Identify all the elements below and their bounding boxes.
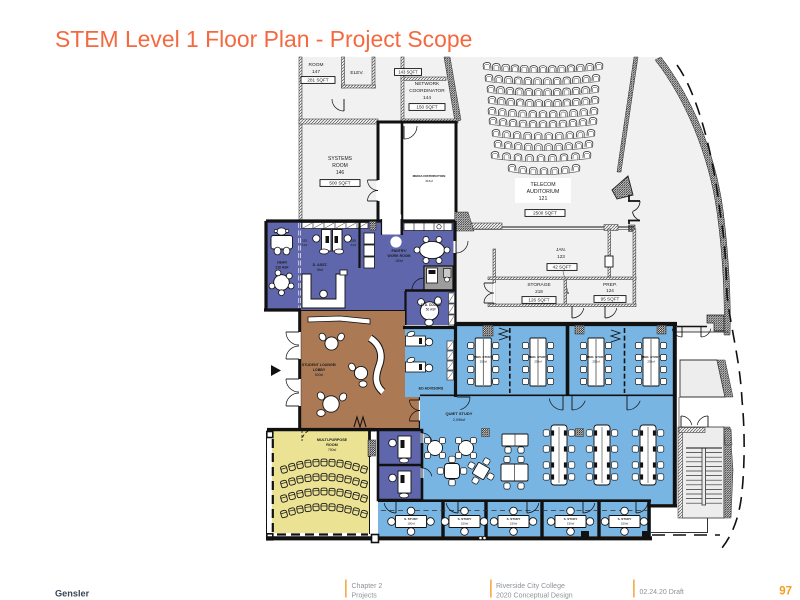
svg-text:TELECOM: TELECOM	[530, 182, 555, 188]
svg-text:210 ASF: 210 ASF	[275, 266, 288, 270]
svg-text:150sf: 150sf	[461, 522, 469, 526]
svg-text:2500 SQFT: 2500 SQFT	[533, 211, 557, 216]
svg-text:500 SQFT: 500 SQFT	[329, 181, 350, 186]
svg-text:QUIET STUDY: QUIET STUDY	[446, 411, 473, 416]
svg-text:2020 Conceptual Design: 2020 Conceptual Design	[496, 593, 573, 600]
svg-text:123: 123	[557, 254, 565, 259]
svg-text:S. STUDY: S. STUDY	[507, 517, 521, 521]
svg-text:316sf: 316sf	[425, 179, 433, 183]
svg-text:64sf: 64sf	[302, 243, 308, 247]
svg-text:COORDINATOR: COORDINATOR	[409, 88, 445, 94]
svg-text:97: 97	[779, 586, 792, 598]
svg-text:150sf: 150sf	[621, 522, 629, 526]
svg-text:MEDIA DISTRIBUTION: MEDIA DISTRIBUTION	[413, 174, 446, 178]
svg-text:STUDENT LOUNGE/: STUDENT LOUNGE/	[302, 363, 336, 367]
svg-text:MULTI-PURPOSE: MULTI-PURPOSE	[317, 438, 348, 442]
svg-text:NETWORK: NETWORK	[415, 81, 440, 87]
svg-text:S. STUDY: S. STUDY	[618, 517, 632, 521]
svg-text:Riverside City College: Riverside City College	[496, 583, 565, 590]
svg-text:218: 218	[535, 289, 543, 294]
svg-text:ELEV.: ELEV.	[350, 70, 363, 76]
svg-text:150sf: 150sf	[395, 259, 403, 263]
svg-text:MED. STUDY: MED. STUDY	[474, 355, 493, 359]
svg-text:143 SQFT: 143 SQFT	[398, 70, 418, 75]
svg-text:146: 146	[336, 170, 345, 176]
svg-text:255sf: 255sf	[647, 360, 655, 364]
svg-text:AUDITORIUM: AUDITORIUM	[527, 189, 560, 195]
svg-text:S. STUDY: S. STUDY	[458, 517, 472, 521]
svg-text:WORK ROOM: WORK ROOM	[388, 254, 411, 258]
svg-text:255sf: 255sf	[592, 360, 600, 364]
svg-text:Chapter 2: Chapter 2	[352, 583, 383, 590]
svg-text:800sf: 800sf	[315, 373, 323, 377]
svg-text:126 SQFT: 126 SQFT	[528, 298, 549, 303]
svg-text:96sf: 96sf	[317, 268, 323, 272]
svg-text:02.24.20 Draft: 02.24.20 Draft	[640, 589, 684, 596]
svg-text:MED. STUDY: MED. STUDY	[642, 355, 661, 359]
svg-text:D. ASST.: D. ASST.	[313, 263, 328, 267]
svg-text:150sf: 150sf	[510, 522, 518, 526]
svg-text:STEM Level 1 Floor Plan - Proj: STEM Level 1 Floor Plan - Project Scope	[55, 26, 472, 52]
svg-text:MED. STUDY: MED. STUDY	[587, 355, 606, 359]
svg-text:SYSTEMS: SYSTEMS	[328, 156, 353, 162]
svg-text:JAN.: JAN.	[556, 247, 566, 252]
svg-text:124: 124	[606, 288, 614, 293]
svg-text:ED ADVISORS: ED ADVISORS	[419, 387, 444, 391]
svg-text:42 SQFT: 42 SQFT	[553, 265, 572, 270]
svg-text:2,096sf: 2,096sf	[453, 418, 466, 422]
svg-text:121: 121	[539, 196, 548, 202]
svg-text:281 SQFT: 281 SQFT	[307, 78, 328, 83]
svg-text:ROOM: ROOM	[332, 163, 348, 169]
svg-text:144: 144	[423, 95, 431, 101]
svg-text:95 SQFT: 95 SQFT	[601, 297, 620, 302]
svg-text:Gensler: Gensler	[55, 589, 90, 599]
svg-text:S. STUDY: S. STUDY	[564, 517, 578, 521]
svg-text:Projects: Projects	[352, 593, 378, 600]
svg-text:150sf: 150sf	[407, 522, 415, 526]
svg-text:750sf: 750sf	[328, 448, 336, 452]
svg-text:56 ASF: 56 ASF	[426, 308, 437, 312]
svg-text:255sf: 255sf	[480, 360, 488, 364]
svg-text:ROOM: ROOM	[326, 443, 337, 447]
svg-text:PANTRY/: PANTRY/	[392, 249, 407, 253]
svg-text:STD. COUNS.: STD. COUNS.	[421, 303, 442, 307]
svg-text:DEAN: DEAN	[277, 261, 287, 265]
svg-text:ROOM: ROOM	[309, 62, 324, 68]
svg-text:150 SQFT: 150 SQFT	[416, 105, 437, 110]
svg-text:S. STUDY: S. STUDY	[404, 517, 418, 521]
svg-text:64sf: 64sf	[351, 243, 357, 247]
svg-text:MED. STUDY: MED. STUDY	[529, 355, 548, 359]
svg-text:150sf: 150sf	[567, 522, 575, 526]
svg-text:STORAGE: STORAGE	[527, 282, 550, 288]
svg-text:LOBBY: LOBBY	[313, 368, 326, 372]
svg-text:255sf: 255sf	[534, 360, 542, 364]
svg-text:147: 147	[312, 69, 320, 75]
